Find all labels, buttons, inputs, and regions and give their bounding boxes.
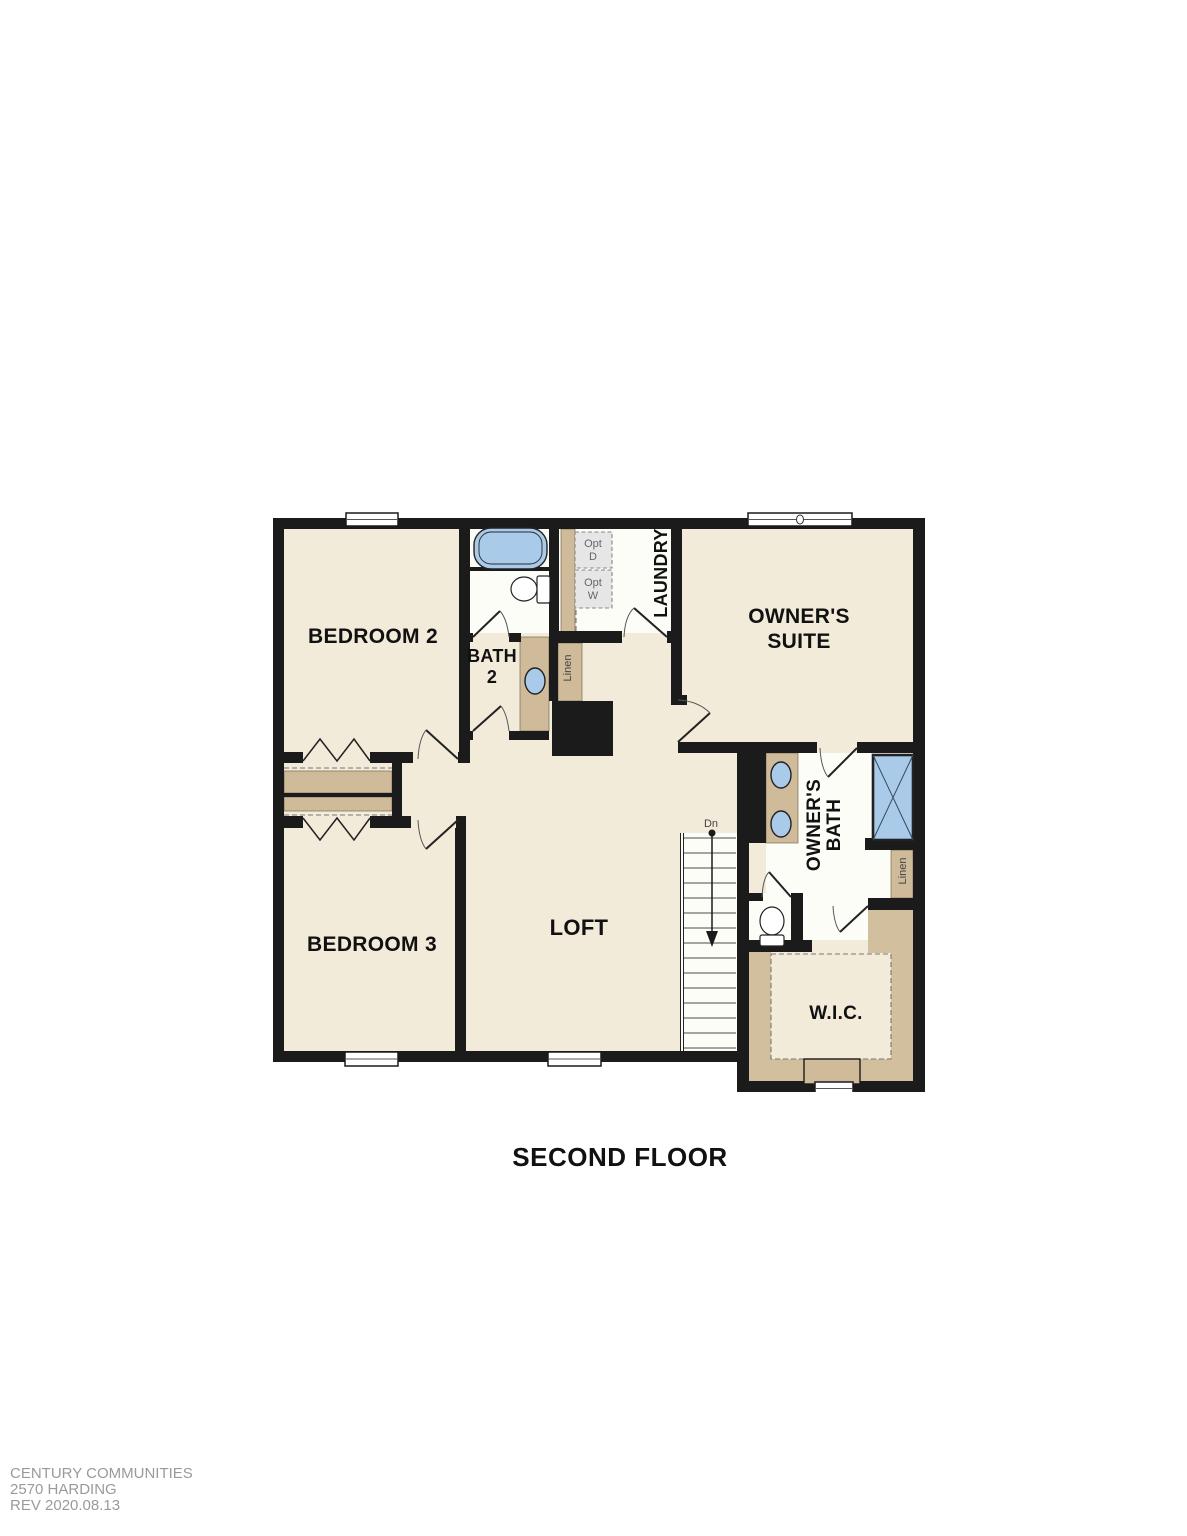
optional-washer-box: Opt W [575, 570, 612, 608]
wall-bath2-mid-b [509, 633, 521, 642]
laundry-cabinet [561, 529, 575, 633]
annotation-bath2-linen: Linen [562, 655, 574, 682]
window-bedroom3 [345, 1052, 398, 1066]
opt-washer-label-1: Opt [584, 577, 602, 589]
owners-toilet [760, 907, 784, 946]
room-label-owners-bath-line2: BATH [824, 799, 845, 852]
window-mullion-mark [797, 515, 804, 524]
window-loft [548, 1052, 601, 1066]
opt-dryer-label-2: D [589, 551, 597, 563]
page-title: SECOND FLOOR [350, 1142, 890, 1173]
window-bedroom2 [346, 513, 398, 526]
room-label-owners-suite-line2: SUITE [767, 630, 830, 653]
room-label-owners-suite-line1: OWNER'S [748, 605, 850, 628]
room-label-bedroom2: BEDROOM 2 [308, 625, 438, 648]
opt-dryer-label-1: Opt [584, 538, 602, 550]
wall-linen-back [549, 643, 558, 701]
wic-window-alcove [804, 1059, 860, 1084]
wall-owners-suite-bottom-b [857, 742, 913, 753]
footer: CENTURY COMMUNITIES 2570 HARDING REV 202… [10, 1466, 193, 1514]
wall-owners-suite-left [671, 529, 682, 697]
wall-bedroom2-bottom-a [284, 752, 303, 763]
mechanical-chase [552, 701, 613, 756]
floor-plan-page: Opt D Opt W [0, 0, 1187, 1536]
wall-vanity-plumbing [737, 742, 766, 843]
footer-revision: REV 2020.08.13 [10, 1498, 193, 1514]
footer-brand: CENTURY COMMUNITIES [10, 1466, 193, 1482]
wall-bedroom3-top-c [456, 816, 466, 828]
room-label-laundry: LAUNDRY [651, 528, 671, 617]
wall-laundry-bottom-a [549, 631, 622, 643]
window-owners-suite [748, 513, 852, 526]
room-label-bath2-line2: 2 [487, 667, 497, 687]
footer-plan-name: 2570 HARDING [10, 1482, 193, 1498]
owners-bath-sink-1 [771, 762, 791, 788]
annotation-owners-bath-linen: Linen [897, 858, 909, 885]
opt-washer-label-2: W [588, 590, 599, 602]
wic-shelf-right [891, 910, 913, 1081]
room-label-bath2-line1: BATH [467, 646, 517, 666]
wall-bedroom3-right [455, 828, 466, 1051]
wall-bedroom2-bottom-c [458, 752, 470, 763]
room-label-wic: W.I.C. [809, 1003, 863, 1024]
bath2-sink [525, 668, 545, 694]
wall-wic-top-right [868, 898, 925, 910]
bath2-toilet [511, 576, 550, 603]
annotation-stairs-down: Dn [704, 818, 718, 830]
optional-dryer-box: Opt D [575, 532, 612, 568]
owners-bath-shower [873, 755, 913, 840]
wic-shelf-corner [868, 910, 891, 953]
bathtub [474, 528, 547, 569]
wall-bath2-mid-a [459, 633, 473, 642]
floor-plan-drawing: Opt D Opt W [273, 510, 925, 1092]
wall-bedroom3-top-b [370, 816, 411, 828]
closet-divider-wall [284, 793, 392, 797]
wall-toilet-room-top [749, 893, 763, 901]
bedroom3-closet-shelf [284, 797, 392, 811]
wall-exterior-left [273, 518, 284, 1062]
bedroom2-closet-shelf [284, 771, 392, 793]
wall-bath2-south-a [459, 731, 473, 740]
room-label-bedroom3: BEDROOM 3 [307, 933, 437, 956]
owners-bath-sink-2 [771, 811, 791, 837]
wall-bath2-south-b [509, 731, 549, 740]
room-label-owners-bath-line1: OWNER'S [804, 779, 825, 871]
wall-exterior-right [913, 518, 925, 1092]
room-label-loft: LOFT [550, 915, 609, 940]
wall-bedroom2-bottom-b [370, 752, 413, 763]
wall-bedroom3-top-a [284, 816, 303, 828]
